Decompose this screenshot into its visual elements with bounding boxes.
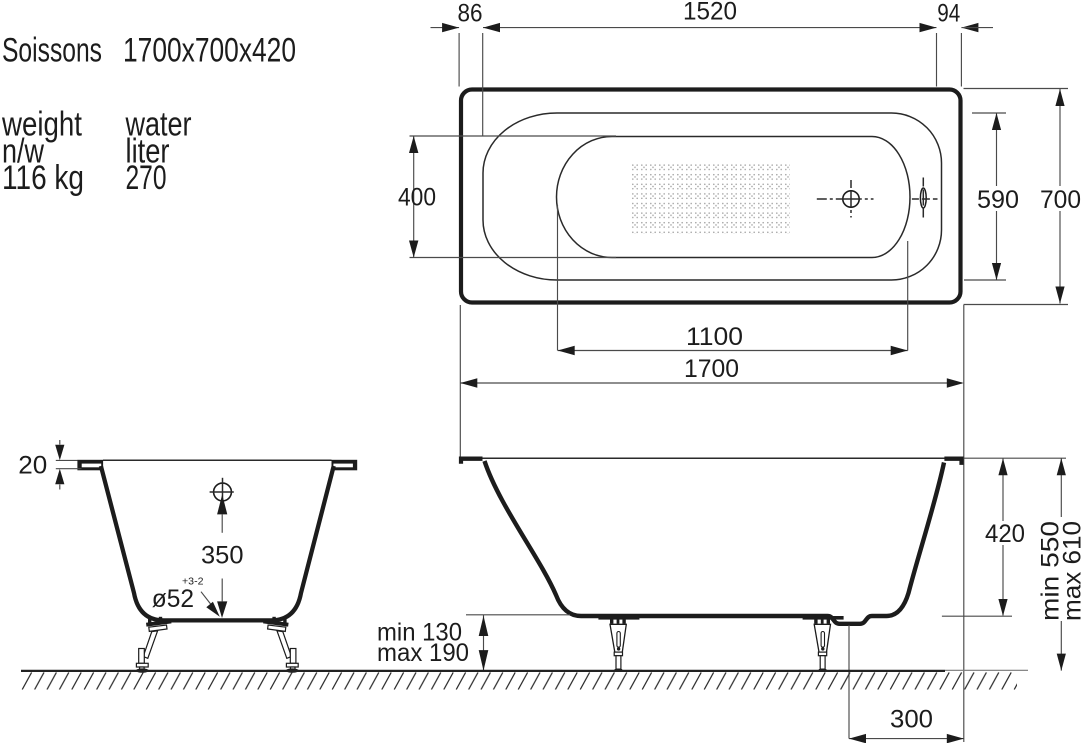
svg-text:700: 700 [1040, 186, 1081, 214]
svg-text:max 190: max 190 [377, 639, 469, 667]
svg-text:400: 400 [398, 184, 436, 212]
svg-text:270: 270 [126, 159, 167, 197]
svg-text:20: 20 [18, 451, 47, 479]
svg-text:350: 350 [201, 541, 244, 569]
svg-text:590: 590 [977, 186, 1019, 214]
svg-text:1700: 1700 [684, 355, 739, 383]
svg-text:1700x700x420: 1700x700x420 [123, 32, 296, 70]
svg-text:+3-2: +3-2 [182, 576, 204, 588]
svg-text:Soissons: Soissons [2, 32, 102, 70]
svg-text:94: 94 [937, 0, 960, 28]
svg-text:1520: 1520 [683, 0, 737, 25]
svg-text:86: 86 [458, 0, 483, 28]
svg-text:max 610: max 610 [1059, 521, 1082, 621]
svg-text:300: 300 [890, 706, 933, 734]
svg-text:420: 420 [985, 520, 1025, 548]
svg-text:ø52: ø52 [152, 585, 194, 613]
svg-text:116 kg: 116 kg [2, 159, 84, 197]
svg-text:1100: 1100 [686, 323, 743, 351]
